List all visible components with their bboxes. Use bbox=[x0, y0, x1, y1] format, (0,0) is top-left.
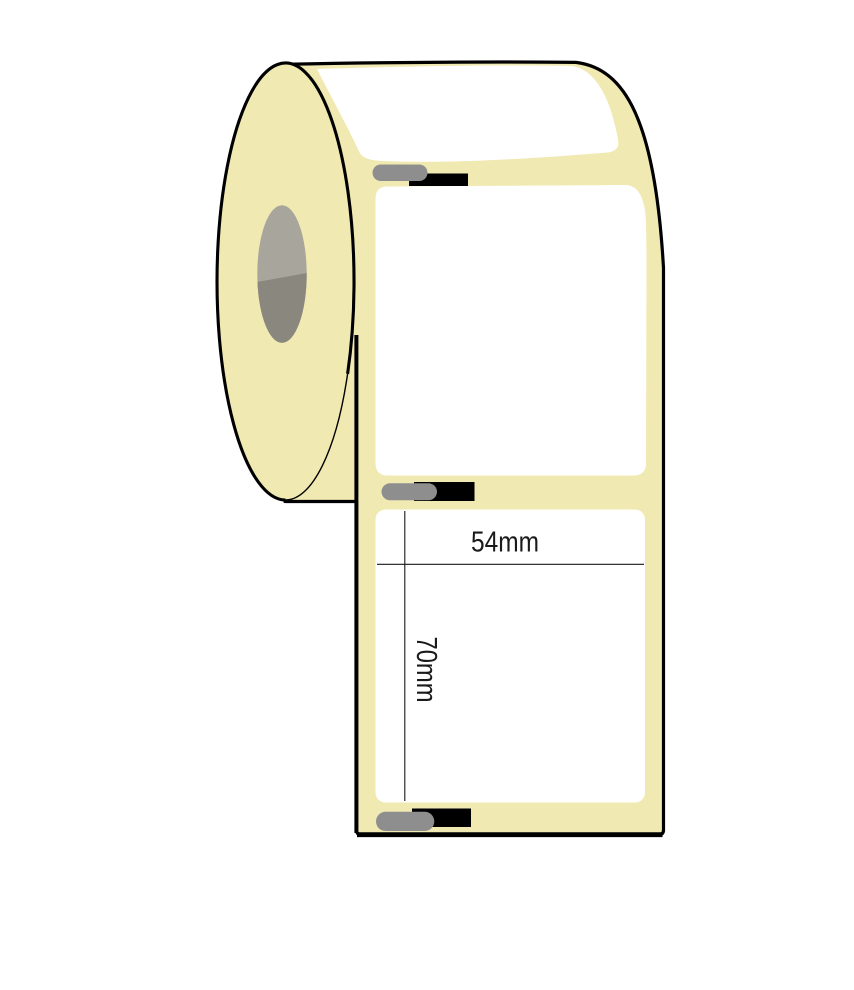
svg-text:54mm: 54mm bbox=[471, 527, 539, 559]
svg-text:70mm: 70mm bbox=[410, 637, 442, 703]
